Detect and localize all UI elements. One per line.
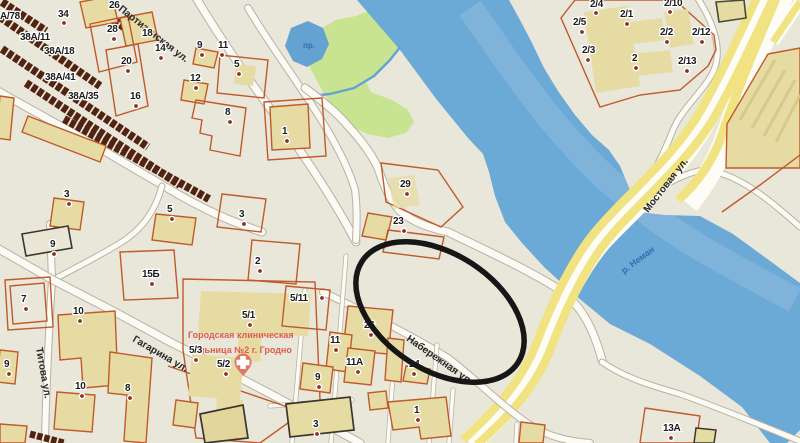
svg-text:2/2: 2/2: [660, 27, 674, 38]
svg-text:26: 26: [109, 0, 120, 11]
svg-text:2: 2: [255, 256, 261, 267]
svg-text:8: 8: [125, 383, 131, 394]
svg-text:Городская клиническая: Городская клиническая: [188, 330, 294, 340]
svg-text:16: 16: [130, 91, 141, 102]
svg-text:18: 18: [142, 28, 153, 39]
svg-text:29: 29: [400, 179, 411, 190]
svg-text:38А/41: 38А/41: [45, 72, 76, 83]
svg-text:9: 9: [50, 239, 56, 250]
svg-text:11А: 11А: [346, 357, 363, 368]
svg-text:3: 3: [239, 209, 245, 220]
svg-text:1: 1: [414, 405, 420, 416]
svg-text:14: 14: [155, 43, 166, 54]
svg-text:7: 7: [21, 294, 27, 305]
svg-text:2/1: 2/1: [620, 9, 634, 20]
svg-text:12: 12: [190, 73, 201, 84]
svg-text:5: 5: [167, 204, 173, 215]
svg-text:34: 34: [58, 9, 69, 20]
svg-text:2/4: 2/4: [590, 0, 604, 10]
svg-text:20: 20: [121, 56, 132, 67]
svg-text:5/3: 5/3: [189, 345, 203, 356]
svg-text:2/12: 2/12: [692, 27, 711, 38]
svg-text:5/2: 5/2: [217, 359, 231, 370]
svg-text:10: 10: [75, 381, 86, 392]
svg-text:больница №2 г. Гродно: больница №2 г. Гродно: [188, 345, 292, 355]
svg-text:38А/11: 38А/11: [20, 32, 51, 43]
svg-text:23: 23: [393, 216, 404, 227]
svg-text:5/11: 5/11: [290, 293, 308, 304]
svg-text:9: 9: [197, 40, 203, 51]
svg-text:2/3: 2/3: [582, 45, 596, 56]
svg-text:28: 28: [107, 24, 118, 35]
svg-text:38А/18: 38А/18: [44, 46, 75, 57]
svg-text:13А: 13А: [663, 423, 681, 434]
svg-text:38А/35: 38А/35: [68, 91, 99, 102]
svg-text:А/78: А/78: [0, 11, 21, 22]
svg-text:15Б: 15Б: [142, 269, 160, 280]
svg-text:9: 9: [315, 372, 321, 383]
svg-text:5: 5: [234, 59, 240, 70]
svg-text:3: 3: [64, 189, 70, 200]
svg-text:пр.: пр.: [303, 41, 315, 50]
svg-text:11: 11: [330, 335, 341, 346]
svg-text:5/1: 5/1: [242, 310, 256, 321]
svg-text:1: 1: [282, 126, 288, 137]
svg-text:2/10: 2/10: [664, 0, 683, 9]
svg-text:3: 3: [313, 419, 319, 430]
svg-text:9: 9: [4, 359, 10, 370]
svg-text:8: 8: [225, 107, 231, 118]
svg-text:10: 10: [73, 306, 84, 317]
svg-text:11: 11: [218, 40, 229, 51]
svg-text:2: 2: [632, 53, 638, 64]
svg-text:2/5: 2/5: [573, 17, 587, 28]
svg-text:2/13: 2/13: [678, 56, 697, 67]
